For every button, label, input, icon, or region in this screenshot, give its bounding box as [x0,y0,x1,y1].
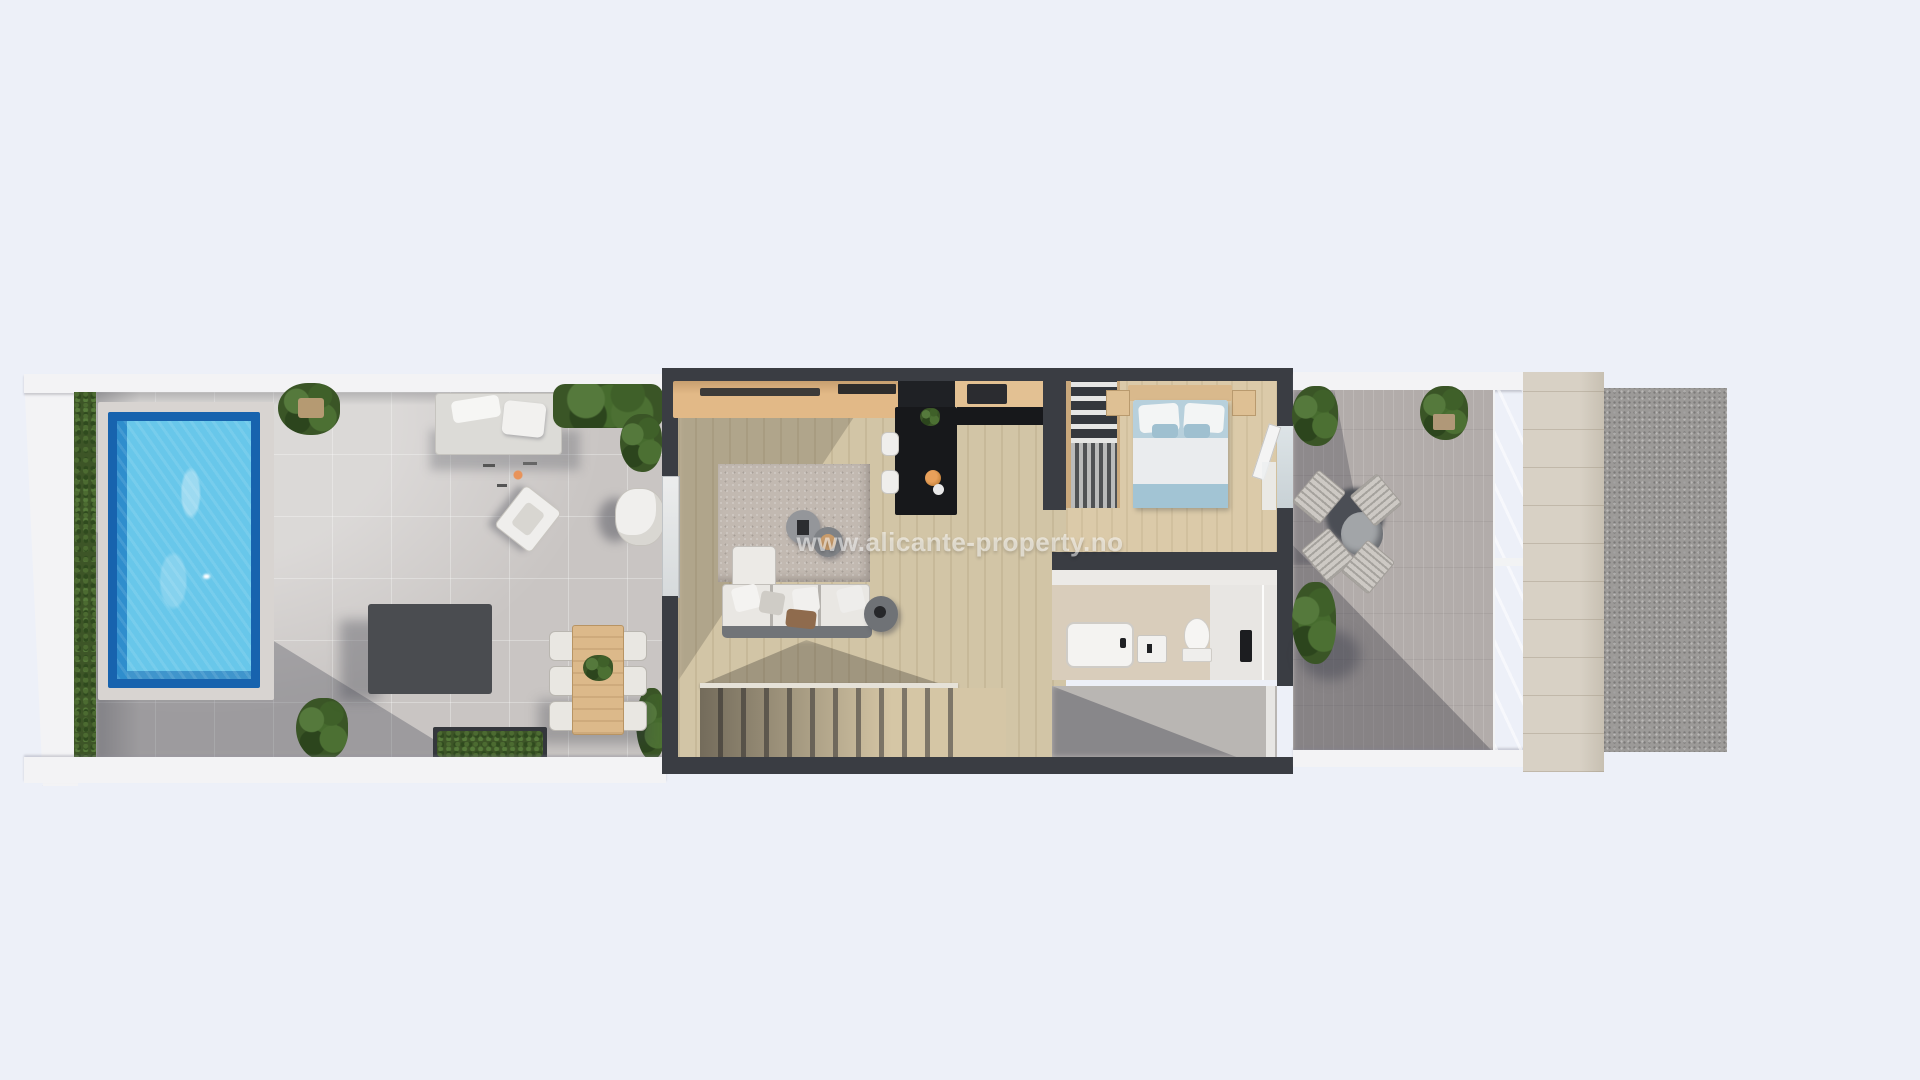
bedroom-curtain-panel [1262,462,1276,510]
gravel-pad [1604,388,1727,752]
terrace-plant-pot [1433,414,1455,430]
plant-pot [298,398,324,418]
bathroom-top-wall-face [1052,570,1277,585]
vanity-sink [1137,635,1167,663]
entry-hall-dark-floor [898,381,955,409]
white-bowl [933,484,944,495]
stone-side-wall [1523,372,1604,772]
bedroom-terrace-door-glass [1277,426,1293,510]
side-table-decor [874,606,886,618]
staircase-descend-shadow [700,688,956,757]
sunbed-pillow [501,400,546,438]
cooktop-appliance [967,384,1007,404]
shower-column [1240,630,1252,662]
terrace-plant [1420,386,1468,440]
terrace-plant [1292,386,1338,446]
terrace-bottom-wall [24,757,666,783]
toilet-tank [1182,648,1212,662]
kitchen-counter-strip [957,407,1043,425]
bed-accent-pillow [1152,424,1178,438]
glass-railing-gap [1493,558,1523,566]
bar-stool [881,432,899,456]
poolside-accessories [483,462,543,490]
terrace-plant-bottom-left [296,698,348,760]
tv-panel [838,384,896,394]
floorplan-render: www.alicante-property.no [0,0,1920,1080]
house-left-wall-lower [662,596,678,762]
house-top-wall [662,368,1293,382]
sofa-pillow [758,590,785,616]
bathtub-faucet [1120,638,1126,648]
table-centerpiece-plant [583,655,613,681]
stair-landing [956,688,1006,757]
nightstand [1232,390,1256,416]
bedroom-right-wall-upper [1277,368,1293,426]
right-terrace-top-wall [1293,372,1540,390]
bar-stool [881,470,899,494]
sideboard-inlay [700,388,820,396]
house-bottom-wall [662,757,1293,774]
terrace-left-wall [24,374,78,786]
planter-box-greenery [437,731,543,757]
sink-tap [1147,644,1152,653]
sofa-back [722,626,872,638]
privacy-hedge [74,392,96,758]
nightstand [1106,390,1130,416]
right-terrace-bottom-wall [1293,750,1540,767]
sofa-throw-blanket [785,608,817,629]
shower-zone-floor [1210,570,1277,680]
modular-outdoor-sofa [368,604,492,694]
glass-railing [1493,390,1527,750]
bed-headboard [1128,385,1232,401]
terrace-plant [1292,582,1336,664]
kitchen-bedroom-wall [1043,381,1066,510]
toilet [1184,618,1210,652]
pool-sparkle [203,574,210,579]
bed-foot-throw [1133,484,1228,508]
watermark-text: www.alicante-property.no [0,527,1920,558]
shower-glass-line [1262,585,1264,680]
bed-accent-pillow [1184,424,1210,438]
patio-white-sill [1266,686,1275,757]
island-plant [920,408,940,426]
corner-bush [620,414,662,472]
